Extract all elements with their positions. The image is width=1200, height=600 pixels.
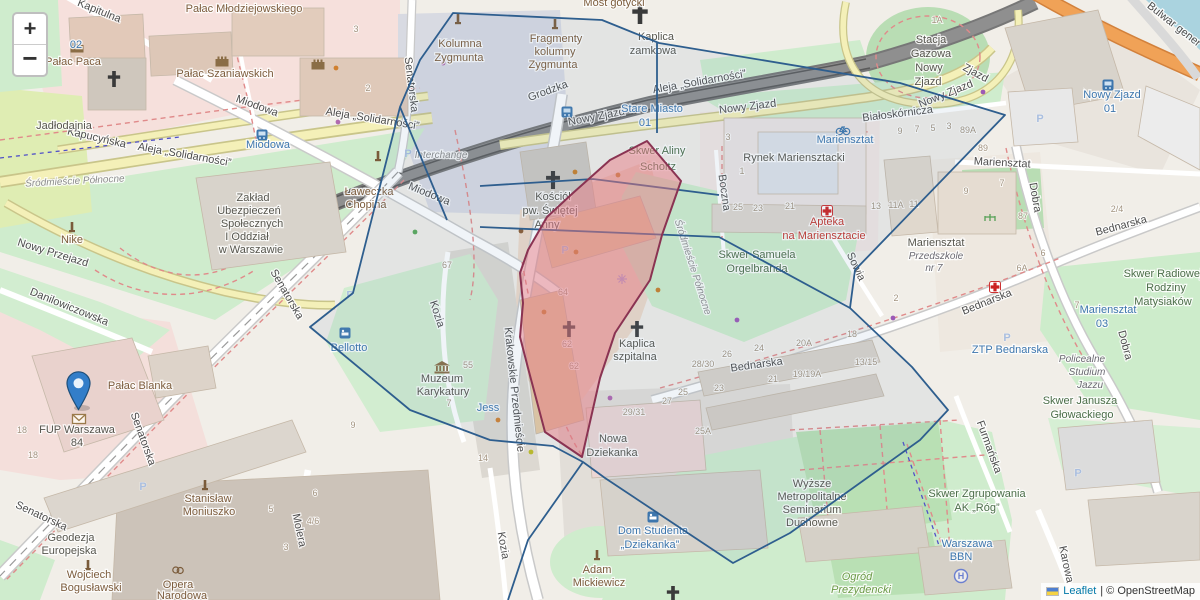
map-label: 9 [350, 420, 355, 430]
map-label: Stanisław [184, 493, 231, 505]
map-label: Prezydencki [831, 584, 891, 596]
map-label: Mariensztat [1080, 304, 1137, 316]
map-label: Europejska [41, 545, 97, 557]
map-label: Rodziny [1146, 282, 1186, 294]
leaflet-link[interactable]: Leaflet [1063, 583, 1096, 600]
marker-hole [74, 378, 84, 388]
map-label: 14 [478, 453, 488, 463]
map-label: ZTP Bednarska [972, 344, 1049, 356]
map-label: 6 [1040, 248, 1045, 258]
map-label: 89 [978, 143, 988, 153]
map-tiles: PPPPPPPH Kapitulna02Pałac PacaPałac Młod… [0, 0, 1200, 600]
map-label: Zjazd [915, 76, 942, 88]
svg-text:P: P [139, 481, 146, 493]
map-label: Gazowa [911, 48, 952, 60]
map-label: 3 [353, 24, 358, 34]
map-label: 02 [70, 39, 82, 51]
dot-icon [891, 316, 896, 321]
map-label: 6 [312, 488, 317, 498]
map-label: 84 [71, 437, 83, 449]
map-label: Mariensztat [908, 237, 965, 249]
svg-text:H: H [958, 571, 965, 581]
map-label: Geodezja [47, 532, 95, 544]
map-label: Nowy [915, 62, 943, 74]
parking-icon: P [139, 481, 146, 493]
map-label: 87 [1018, 211, 1028, 221]
svg-text:P: P [1074, 467, 1081, 479]
map-label: Miodowa [246, 139, 291, 151]
zoom-in-button[interactable]: + [14, 14, 46, 44]
map-label: AK „Róg” [954, 502, 1000, 514]
map-label: Skwer Radiowej [1124, 268, 1200, 280]
map-label: Nowy Zjazd [1083, 89, 1140, 101]
envelope-icon [73, 415, 86, 424]
svg-text:P: P [1036, 113, 1043, 125]
map-label: Skwer Zgrupowania [928, 488, 1026, 500]
map-label: BBN [950, 551, 973, 563]
dot-icon [981, 90, 986, 95]
map-label: 4/6 [307, 516, 320, 526]
dot-icon [334, 66, 339, 71]
map-label: Kozia [495, 531, 512, 561]
map-label: Społecznych [221, 218, 283, 230]
parking-icon: P [1074, 467, 1081, 479]
map-label: Stacja [916, 34, 947, 46]
map-label: Pałac Młodziejowskiego [186, 3, 303, 15]
map-label: Warszawa [942, 538, 994, 550]
map-label: Adam [583, 564, 612, 576]
attribution-text: | © OpenStreetMap [1100, 583, 1195, 600]
parking-icon: P [1003, 332, 1010, 344]
map-label: Jazzu [1076, 380, 1104, 391]
map-label: Pałac Szaniawskich [176, 68, 273, 80]
map-label: Matysiaków [1134, 296, 1192, 308]
map-label: Pałac Blanka [108, 380, 173, 392]
attribution-bar: Leaflet | © OpenStreetMap [1041, 583, 1200, 600]
map-label: Skwer Janusza [1043, 395, 1118, 407]
map-label: Studium [1069, 367, 1106, 378]
map-label: Most gotycki [583, 0, 644, 9]
map-label: Policealne [1059, 354, 1106, 365]
zoom-control: + − [12, 12, 48, 77]
map-marker-pin[interactable] [66, 371, 92, 412]
map-label: w Warszawie [218, 244, 283, 256]
map-label: 5 [268, 504, 273, 514]
parking-icon: P [1036, 113, 1043, 125]
map-label: 03 [1096, 318, 1108, 330]
map-label: 2 [893, 293, 898, 303]
map-label: 2 [365, 83, 370, 93]
map-label: Nike [61, 234, 83, 246]
map-label: Moniuszko [183, 506, 236, 518]
zoom-out-button[interactable]: − [14, 44, 46, 75]
map-label: 1A [931, 15, 942, 25]
map-label: Jadłodajnia [36, 120, 93, 132]
map-label: 18 [17, 425, 27, 435]
map-label: Głowackiego [1051, 409, 1114, 421]
map-label: nr 7 [925, 263, 943, 274]
map-label: Mickiewicz [573, 577, 626, 589]
map-label: 3 [283, 542, 288, 552]
map-label: Pałac Paca [45, 56, 102, 68]
map-label: 7 [999, 178, 1004, 188]
map-label: 7 [1074, 300, 1079, 310]
map-label: 18 [28, 450, 38, 460]
map-label: Bogusławski [60, 582, 121, 594]
map-label: I Oddział [225, 231, 269, 243]
map-label: FUP Warszawa [39, 424, 116, 436]
leaflet-map[interactable]: PPPPPPPH Kapitulna02Pałac PacaPałac Młod… [0, 0, 1200, 600]
map-label: 6A [1016, 263, 1027, 273]
map-label: 2/4 [1111, 204, 1124, 214]
dot-icon [336, 120, 341, 125]
map-label: 9 [963, 186, 968, 196]
helipad-icon: H [955, 570, 968, 583]
map-label: Narodowa [157, 590, 208, 600]
map-label: Zakład [236, 192, 269, 204]
map-label: „Dziekanka” [621, 539, 680, 551]
map-label: Wojciech [67, 569, 111, 581]
map-label: Ogród [842, 571, 873, 583]
map-label: Przedszkole [909, 251, 964, 262]
ukraine-flag-icon [1046, 587, 1059, 596]
svg-text:P: P [1003, 332, 1010, 344]
map-label: 01 [1104, 103, 1116, 115]
map-label: Ubezpieczeń [217, 205, 281, 217]
dot-icon [529, 450, 534, 455]
